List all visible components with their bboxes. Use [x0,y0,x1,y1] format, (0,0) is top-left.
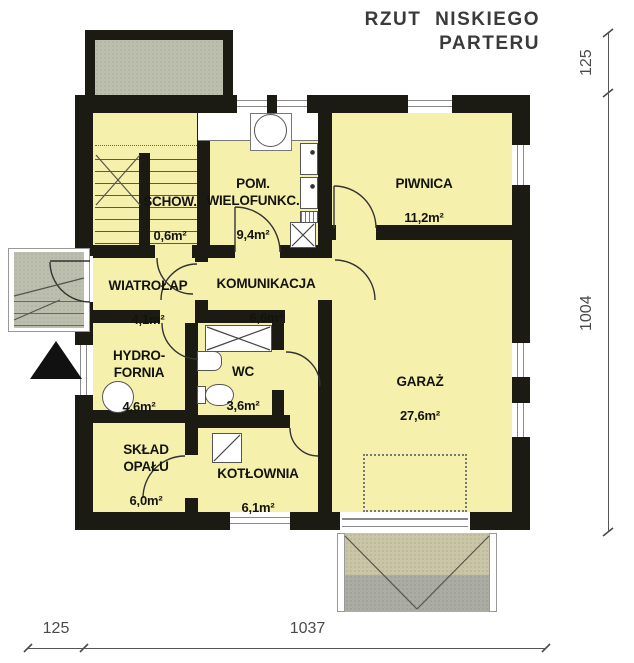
entrance-arrow-icon [30,341,82,379]
driveway-lower [345,575,489,612]
porch-step-lines [14,290,84,328]
window-piwnica-east [512,145,530,185]
terrace [95,40,223,95]
terrace-wall-left [85,30,95,95]
room-name: SCHOW. [135,194,205,210]
wall-sklad-kotlownia-a [185,423,198,455]
room-label-piwnica: PIWNICA 11,2m² [364,160,484,243]
room-name: SKŁAD OPAŁU [106,442,186,475]
room-area: 0,6m² [135,228,205,244]
dimension-line-bottom [28,648,546,649]
driveway-curb-right [489,533,497,612]
parking-space-marking [363,454,467,512]
wall-wc-east-b [272,390,284,415]
dimension-label-bottom-left: 125 [28,620,84,638]
garage-door-leaf [342,518,468,527]
window-garage-east-2 [512,403,530,437]
room-area: 11,2m² [364,210,484,226]
window-kitchen-1 [237,95,267,113]
room-area: 4,1m² [93,312,203,328]
terrace-wall-top [85,30,233,40]
dimension-line-right [608,33,609,532]
room-area: 6,6m² [201,310,331,326]
driveway-curb-left [337,533,345,612]
room-label-kotlownia: KOTŁOWNIA 6,1m² [203,450,313,533]
room-label-wc: WC 3,6m² [213,348,273,431]
room-label-sklad-opalu: SKŁAD OPAŁU 6,0m² [106,426,186,525]
floor-plan: RZUT NISKIEGO PARTERU [0,0,634,663]
room-area: 27,6m² [375,408,465,424]
room-name: KOTŁOWNIA [203,466,313,482]
room-label-hydrofornia: HYDRO-FORNIA 4,6m² [102,332,176,431]
window-garage-east-1 [512,343,530,377]
room-area: 4,6m² [102,399,176,415]
terrace-wall-right [223,30,233,95]
room-area: 3,6m² [213,398,273,414]
room-label-komunikacja: KOMUNIKACJA 6,6m² [201,260,331,343]
room-label-schowek: SCHOW. 0,6m² [135,178,205,261]
page-title: RZUT NISKIEGO PARTERU [365,8,540,56]
room-name: WC [213,364,273,380]
room-label-garaz: GARAŻ 27,6m² [375,358,465,441]
room-name: GARAŻ [375,374,465,390]
sink-icon [254,114,287,147]
window-kitchen-2 [277,95,307,113]
room-name: HYDRO-FORNIA [102,348,176,381]
driveway-upper [345,533,489,575]
room-name: WIATROŁAP [93,278,203,294]
room-area: 6,1m² [203,500,313,516]
stairs-dotted-line [95,145,197,146]
room-name: KOMUNIKACJA [201,276,331,292]
dimension-label-right: 1004 [578,278,596,348]
title-line-1: RZUT NISKIEGO [365,8,540,32]
dimension-label-bottom-main: 1037 [250,620,365,638]
room-label-pom-wielofunkcyjne: POM. WIELOFUNKC. 9,4m² [199,160,307,259]
wall-pom-piwnica [318,113,332,240]
room-name: PIWNICA [364,176,484,192]
room-area: 9,4m² [199,227,307,243]
wall-sklad-kotlownia-b [185,498,198,512]
dimension-label-top-right: 125 [578,36,596,90]
title-line-2: PARTERU [365,32,540,56]
room-name: POM. WIELOFUNKC. [199,176,307,209]
room-area: 6,0m² [106,493,186,509]
wall-piwnica-south-stub [332,225,336,240]
window-piwnica-north [408,95,452,113]
